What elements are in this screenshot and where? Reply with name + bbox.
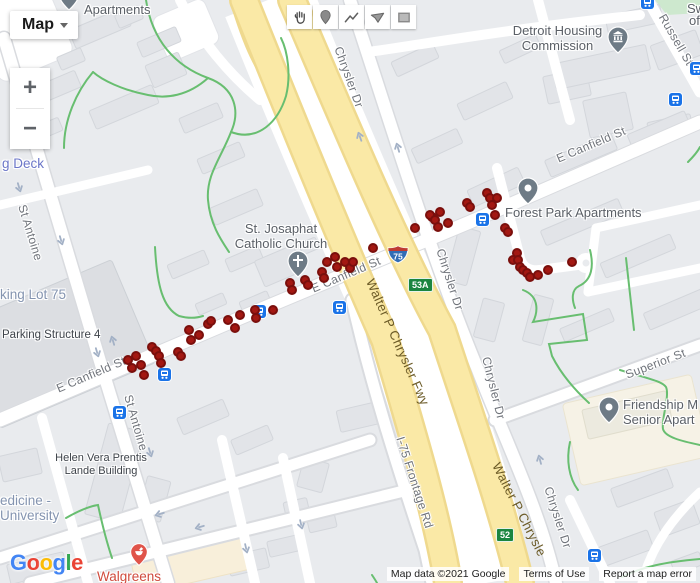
pan-tool-button[interactable] <box>287 5 312 29</box>
polygon-icon <box>369 10 386 25</box>
data-point-marker[interactable] <box>503 227 513 237</box>
transit-stop-icon[interactable] <box>476 213 489 226</box>
data-point-marker[interactable] <box>487 200 497 210</box>
data-point-marker[interactable] <box>319 273 329 283</box>
transit-stop-icon[interactable] <box>588 549 601 562</box>
rectangle-icon <box>396 10 412 25</box>
zoom-out-button[interactable]: − <box>10 109 50 149</box>
building-label-helen-vera: Helen Vera Prentis Lande Building <box>55 452 147 478</box>
report-map-error-link[interactable]: Report a map error <box>599 567 696 581</box>
google-logo-letter: e <box>71 550 83 575</box>
exit-badge-52: 52 <box>496 528 514 542</box>
poi-label-friendship: Friendship M Senior Apart <box>623 397 698 427</box>
building-label-parking-structure-4: Parking Structure 4 <box>2 329 100 342</box>
attribution-bar: Map data ©2021 Google Terms of Use Repor… <box>387 567 696 581</box>
transit-stop-icon[interactable] <box>690 62 700 75</box>
marker-icon <box>318 9 333 25</box>
google-logo-letter: G <box>10 550 27 575</box>
data-point-marker[interactable] <box>303 280 313 290</box>
data-point-marker[interactable] <box>251 313 261 323</box>
data-point-marker[interactable] <box>435 207 445 217</box>
apartments-poi-pin[interactable] <box>57 0 81 11</box>
chevron-down-icon <box>60 23 68 28</box>
poi-label-forest-park: Forest Park Apartments <box>505 205 642 220</box>
poi-label-walgreens: Walgreens <box>97 569 161 583</box>
rectangle-tool-button[interactable] <box>391 5 416 29</box>
housing-commission-poi-pin[interactable] <box>606 26 630 54</box>
google-logo-letter: g <box>53 550 66 575</box>
data-point-marker[interactable] <box>330 252 340 262</box>
transit-stop-icon[interactable] <box>158 368 171 381</box>
transit-stop-icon[interactable] <box>641 0 654 9</box>
data-point-marker[interactable] <box>136 360 146 370</box>
data-point-marker[interactable] <box>543 265 553 275</box>
exit-badge-53a: 53A <box>408 278 433 292</box>
svg-text:75: 75 <box>393 252 403 262</box>
google-logo-letter: o <box>27 550 40 575</box>
data-point-marker[interactable] <box>443 218 453 228</box>
data-point-marker[interactable] <box>410 223 420 233</box>
data-point-marker[interactable] <box>156 358 166 368</box>
forest-park-poi-pin[interactable] <box>516 177 540 205</box>
google-logo[interactable]: Google <box>10 550 83 576</box>
drawing-toolbar <box>287 5 416 29</box>
area-label-parking-lot-75: king Lot 75 <box>0 287 66 302</box>
transit-stop-icon[interactable] <box>333 301 346 314</box>
data-point-marker[interactable] <box>490 210 500 220</box>
hand-icon <box>291 9 308 26</box>
map-type-label: Map <box>22 16 54 34</box>
area-label-medicine-university: edicine - University <box>0 493 59 523</box>
transit-stop-icon[interactable] <box>113 406 126 419</box>
data-point-marker[interactable] <box>176 351 186 361</box>
data-point-marker[interactable] <box>465 202 475 212</box>
poi-label-apartments: Apartments <box>84 2 150 17</box>
map-type-button[interactable]: Map <box>10 11 78 39</box>
poi-label-of-partial: of <box>689 13 700 28</box>
zoom-in-button[interactable]: + <box>10 68 50 108</box>
data-point-marker[interactable] <box>533 270 543 280</box>
google-logo-letter: o <box>40 550 53 575</box>
zoom-control: + − <box>10 68 50 149</box>
data-point-marker[interactable] <box>139 370 149 380</box>
poi-label-detroit-housing: Detroit Housing Commission <box>500 23 615 53</box>
data-point-marker[interactable] <box>194 330 204 340</box>
terms-of-use-link[interactable]: Terms of Use <box>519 567 589 581</box>
data-point-marker[interactable] <box>368 243 378 253</box>
transit-stop-icon[interactable] <box>669 93 682 106</box>
interstate-75-shield: 75 <box>387 245 409 264</box>
marker-tool-button[interactable] <box>313 5 338 29</box>
data-point-marker[interactable] <box>287 285 297 295</box>
data-point-marker[interactable] <box>268 305 278 315</box>
friendship-poi-pin[interactable] <box>597 396 621 424</box>
data-point-marker[interactable] <box>567 257 577 267</box>
poi-label-st-josaphat: St. Josaphat Catholic Church <box>222 221 340 251</box>
data-point-marker[interactable] <box>184 325 194 335</box>
data-point-marker[interactable] <box>433 222 443 232</box>
walgreens-poi-pin[interactable] <box>129 542 149 567</box>
data-point-marker[interactable] <box>235 310 245 320</box>
map-data-attribution: Map data ©2021 Google <box>387 567 510 581</box>
church-poi-pin[interactable] <box>286 250 310 278</box>
polyline-icon <box>343 10 360 25</box>
map-application: E Canfield St E Canfield St E Canfield S… <box>0 0 700 583</box>
polygon-tool-button[interactable] <box>365 5 390 29</box>
data-point-marker[interactable] <box>206 316 216 326</box>
area-label-parking-deck: g Deck <box>2 156 44 171</box>
polyline-tool-button[interactable] <box>339 5 364 29</box>
data-point-marker[interactable] <box>348 257 358 267</box>
data-point-marker[interactable] <box>230 323 240 333</box>
